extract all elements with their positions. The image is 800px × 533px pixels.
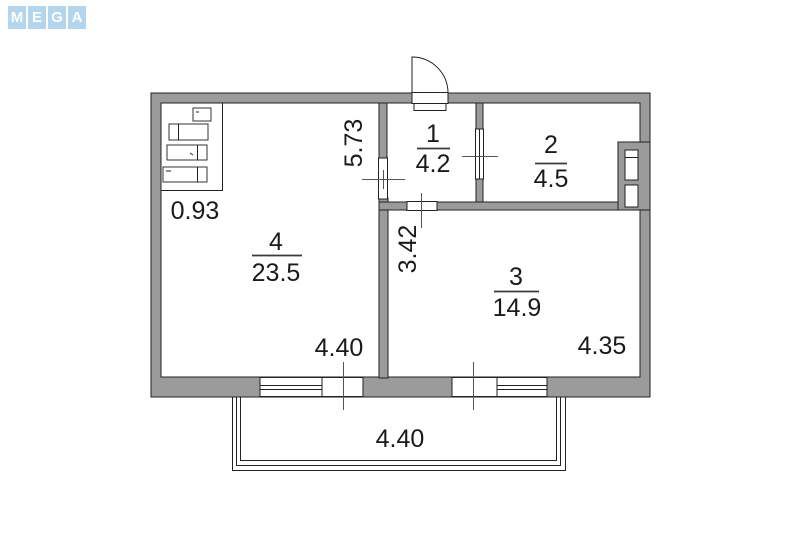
wall-room4-room3: [379, 198, 388, 378]
room2-number: 2: [544, 131, 558, 159]
dim-balcony-width: 4.40: [376, 425, 425, 453]
window-room3: [497, 378, 547, 397]
vent-shaft-lower: [625, 185, 638, 207]
furniture-item: [163, 167, 207, 182]
apartment-floorplan: 1 4.2 2 4.5 3 14.9 4 23.5 0.93 5.73 3.42…: [0, 0, 800, 533]
room1-number: 1: [426, 120, 440, 148]
furniture-item: [167, 145, 207, 160]
furniture-item: [169, 124, 208, 140]
dimension-ticks: [344, 157, 499, 411]
dim-room4-width: 4.40: [315, 334, 364, 362]
room2-area: 4.5: [534, 165, 569, 193]
entrance-door-swing: [412, 57, 448, 93]
wall-hall-room3-left: [379, 202, 407, 210]
room1-area: 4.2: [416, 150, 451, 178]
room4-area: 23.5: [252, 259, 301, 287]
entrance-door-opening: [412, 93, 448, 104]
wall-room4-hall-upper: [379, 103, 387, 159]
balcony-door-room3: [452, 378, 497, 397]
dim-room3-width: 4.35: [578, 332, 627, 360]
room-labels: 1 4.2 2 4.5 3 14.9 4 23.5: [252, 120, 569, 322]
entrance-door-threshold: [414, 104, 446, 111]
dim-room4-depth: 5.73: [340, 119, 368, 168]
window-room4: [260, 378, 322, 397]
furniture-item: [193, 108, 211, 121]
floorplan-page: M E G A: [0, 0, 800, 533]
dim-hall-depth: 3.42: [394, 225, 422, 274]
wall-room2-room3: [437, 202, 638, 210]
vent-shaft-upper: [625, 150, 638, 180]
dim-closet: 0.93: [171, 197, 220, 225]
room4-number: 4: [269, 228, 283, 256]
closet-block: [161, 103, 223, 191]
room3-number: 3: [509, 263, 523, 291]
room3-area: 14.9: [493, 294, 542, 322]
balcony-door-room4: [322, 378, 363, 397]
wall-hall-room2-upper: [476, 103, 483, 129]
